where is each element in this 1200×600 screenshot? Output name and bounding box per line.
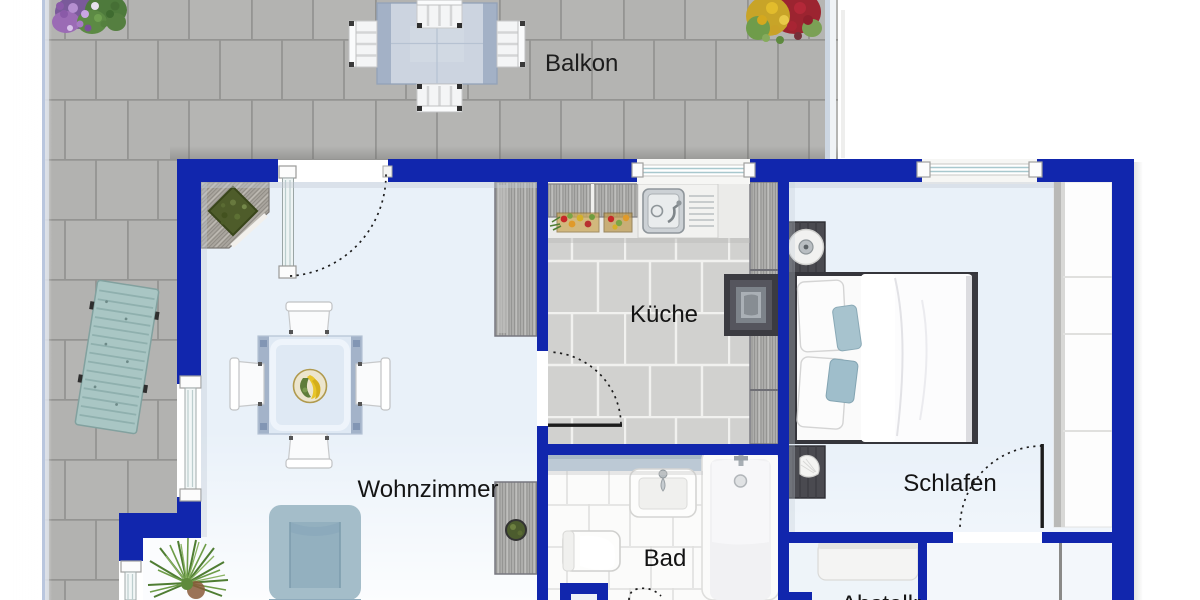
svg-text:Abstellr.: Abstellr.: [841, 591, 926, 600]
svg-text:Wohnzimmer: Wohnzimmer: [358, 476, 499, 503]
svg-text:Bad: Bad: [644, 545, 687, 572]
svg-text:Küche: Küche: [630, 301, 698, 328]
svg-text:Schlafen: Schlafen: [903, 470, 996, 497]
svg-text:Balkon: Balkon: [545, 50, 618, 77]
